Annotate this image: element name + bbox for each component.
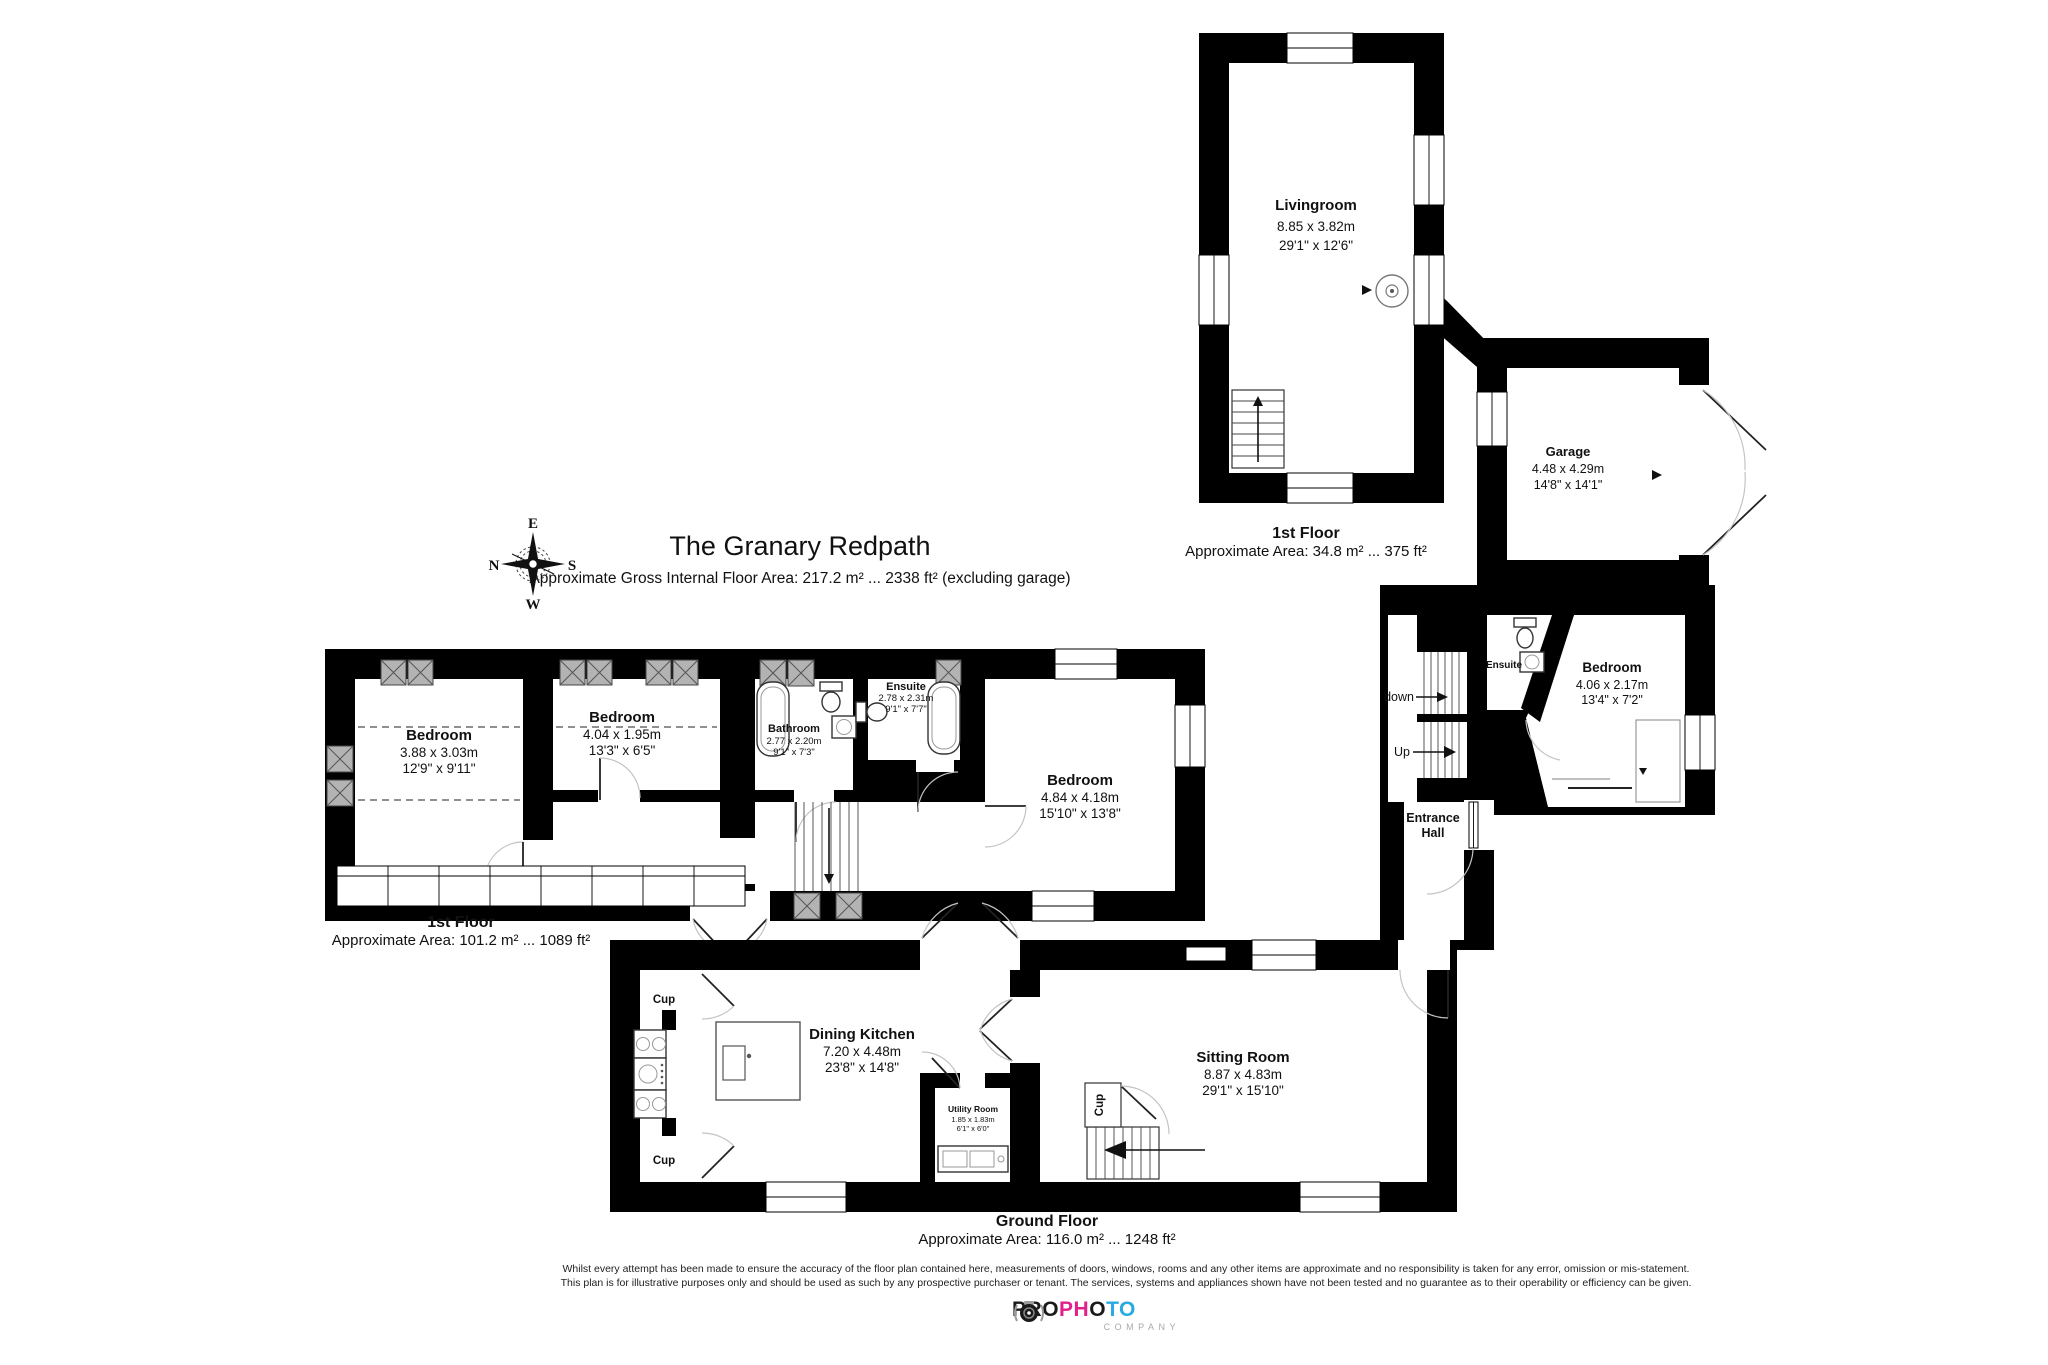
bedroom3-metric: 4.84 x 4.18m <box>1041 790 1119 805</box>
bedroom1-imperial: 12'9" x 9'11" <box>402 761 475 776</box>
bedroom2-metric: 4.04 x 1.95m <box>583 727 661 742</box>
annex-bedroom-imperial: 13'4" x 7'2" <box>1581 693 1643 707</box>
sitting-room-name: Sitting Room <box>1196 1049 1289 1066</box>
annex-ensuite-name: Ensuite <box>1486 660 1523 671</box>
livingroom-label: Livingroom 8.85 x 3.82m 29'1" x 12'6" <box>1275 197 1357 253</box>
dining-kitchen-metric: 7.20 x 4.48m <box>823 1044 901 1059</box>
ensuite-metric: 2.78 x 2.31m <box>879 693 934 704</box>
compass-north: N <box>489 558 500 574</box>
annex-livingroom-building: Livingroom 8.85 x 3.82m 29'1" x 12'6" <box>1199 33 1494 503</box>
garage-name: Garage <box>1546 444 1591 459</box>
ground-floor-area: Approximate Area: 116.0 m² ... 1248 ft² <box>918 1231 1175 1248</box>
compass-east: E <box>528 516 538 532</box>
dining-kitchen-name: Dining Kitchen <box>809 1026 915 1043</box>
cup-top-label: Cup <box>653 994 675 1006</box>
prophoto-logo: PROPHOTO COMPANY <box>1012 1299 1182 1332</box>
bedroom2-name: Bedroom <box>589 709 655 726</box>
garage-metric: 4.48 x 4.29m <box>1532 462 1604 476</box>
sink-icon <box>1520 652 1544 672</box>
bathroom-metric: 2.77 x 2.20m <box>767 736 822 747</box>
sitting-room-imperial: 29'1" x 15'10" <box>1202 1083 1284 1098</box>
sink-icon <box>832 716 856 738</box>
ensuite-imperial: 9'1" x 7'7" <box>885 704 927 715</box>
compass-rose: E N S W <box>489 516 577 613</box>
kitchen-window-bottom <box>766 1182 846 1212</box>
eaves-cupboards <box>337 866 745 906</box>
livingroom-name: Livingroom <box>1275 197 1357 214</box>
garage-imperial: 14'8" x 14'1" <box>1534 478 1603 492</box>
sitting-window-bottom <box>1300 1182 1380 1212</box>
ensuite-name: Ensuite <box>886 681 926 693</box>
cup-bottom-label: Cup <box>653 1155 675 1167</box>
disclaimer: Whilst every attempt has been made to en… <box>561 1263 1692 1289</box>
utility-imperial: 6'1" x 6'0" <box>957 1124 990 1133</box>
sitting-window-top <box>1252 940 1316 970</box>
main-first-area: Approximate Area: 101.2 m² ... 1089 ft² <box>332 932 590 949</box>
annex-bedroom-metric: 4.06 x 2.17m <box>1576 678 1648 692</box>
annex-floor-area: Approximate Area: 34.8 m² ... 375 ft² <box>1185 543 1427 560</box>
bedroom2-label: Bedroom 4.04 x 1.95m 13'3" x 6'5" <box>583 709 661 758</box>
garage-window-left <box>1477 392 1507 446</box>
bedroom1-label: Bedroom 3.88 x 3.03m 12'9" x 9'11" <box>400 727 478 776</box>
annex-bedroom-window <box>1685 715 1715 770</box>
page-subtitle: Approximate Gross Internal Floor Area: 2… <box>529 570 1070 587</box>
livingroom-window-top <box>1287 33 1353 63</box>
bathroom-imperial: 9'1" x 7'3" <box>773 747 815 758</box>
shower-icon <box>936 660 961 685</box>
bedroom3-label: Bedroom 4.84 x 4.18m 15'10" x 13'8" <box>1039 772 1121 821</box>
annex-floor-name: 1st Floor <box>1272 525 1340 542</box>
disclaimer-line1: Whilst every attempt has been made to en… <box>563 1263 1690 1275</box>
plan-header: The Granary Redpath Approximate Gross In… <box>529 531 1070 587</box>
page-title: The Granary Redpath <box>669 531 930 561</box>
bedroom2-imperial: 13'3" x 6'5" <box>589 743 656 758</box>
ground-floor-building: Utility Room 1.85 x 1.83m 6'1" x 6'0" Cu… <box>610 903 1457 1212</box>
compass-west: W <box>526 597 541 613</box>
utility-metric: 1.85 x 1.83m <box>951 1115 994 1124</box>
annex-bedroom-name: Bedroom <box>1582 660 1641 675</box>
cup-sitting-label: Cup <box>1094 1094 1106 1116</box>
bedroom1-metric: 3.88 x 3.03m <box>400 745 478 760</box>
main-first-name: 1st Floor <box>427 914 495 931</box>
ground-floor-name: Ground Floor <box>996 1213 1098 1230</box>
bedroom1-name: Bedroom <box>406 727 472 744</box>
toilet-icon <box>856 702 887 722</box>
toilet-icon <box>820 682 842 712</box>
main-first-floor-building: Bathroom 2.77 x 2.20m 9'1" x 7'3" Ensuit… <box>325 649 1205 952</box>
fireplace <box>1160 940 1246 966</box>
bedroom3-name: Bedroom <box>1047 772 1113 789</box>
livingroom-metric: 8.85 x 3.82m <box>1277 219 1355 234</box>
up-label: Up <box>1394 745 1410 759</box>
livingroom-window-bottom <box>1287 473 1353 503</box>
annex-ground-wing: down Up Ensuite <box>1380 585 1715 950</box>
ground-floor-caption: Ground Floor Approximate Area: 116.0 m² … <box>918 1213 1175 1248</box>
shower-icon <box>788 660 814 686</box>
livingroom-window-right-2 <box>1414 255 1444 325</box>
kitchen-island <box>716 1022 800 1100</box>
annex-first-floor-caption: 1st Floor Approximate Area: 34.8 m² ... … <box>1185 525 1427 560</box>
livingroom-imperial: 29'1" x 12'6" <box>1279 238 1353 253</box>
livingroom-window-right-1 <box>1414 135 1444 205</box>
bathroom-name: Bathroom <box>768 723 820 735</box>
compass-south: S <box>568 558 576 574</box>
utility-name: Utility Room <box>948 1104 998 1114</box>
disclaimer-line2: This plan is for illustrative purposes o… <box>561 1277 1692 1289</box>
sitting-room-label: Sitting Room 8.87 x 4.83m 29'1" x 15'10" <box>1196 1049 1289 1098</box>
entrance-hall-line1: Entrance <box>1406 811 1460 825</box>
floorplan-page: The Granary Redpath Approximate Gross In… <box>0 0 2048 1365</box>
livingroom-window-left <box>1199 255 1229 325</box>
sitting-room-metric: 8.87 x 4.83m <box>1204 1067 1282 1082</box>
utility-sink-icon <box>938 1146 1008 1172</box>
dining-kitchen-imperial: 23'8" x 14'8" <box>825 1060 899 1075</box>
down-label: down <box>1384 690 1414 704</box>
entrance-hall-line2: Hall <box>1422 826 1445 840</box>
bedroom3-imperial: 15'10" x 13'8" <box>1039 806 1121 821</box>
camera-icon <box>1012 1299 1046 1327</box>
garage-building: Garage 4.48 x 4.29m 14'8" x 14'1" <box>1477 338 1766 590</box>
floorplan-svg: The Granary Redpath Approximate Gross In… <box>0 0 2048 1365</box>
garage-door <box>1679 385 1766 555</box>
